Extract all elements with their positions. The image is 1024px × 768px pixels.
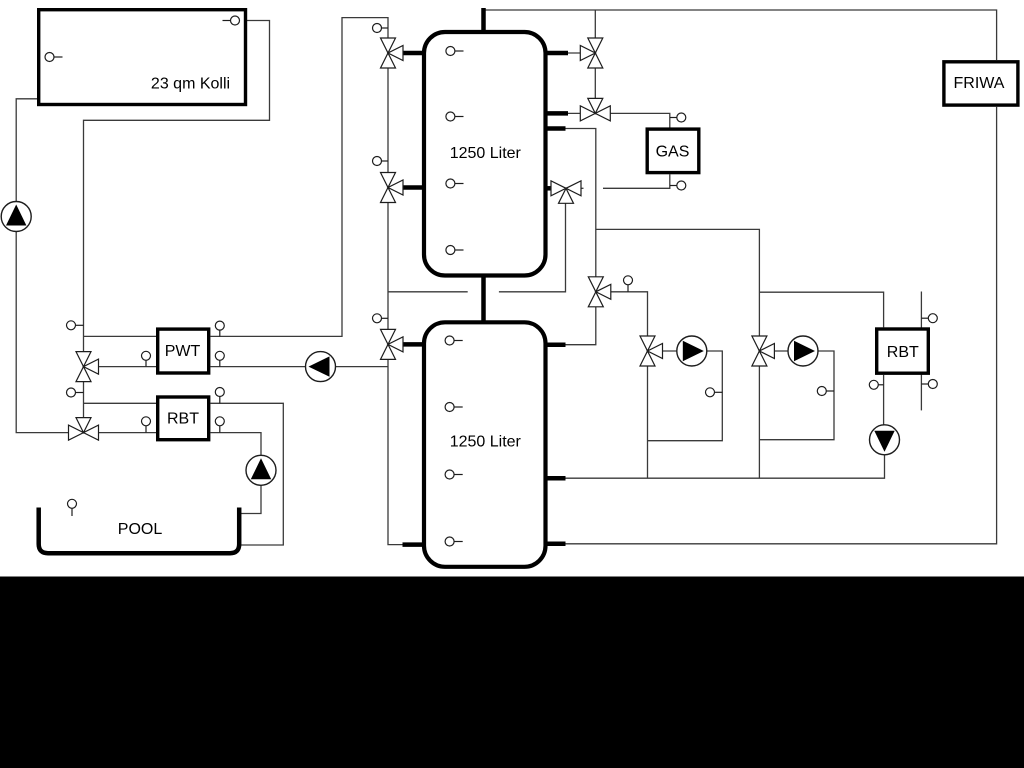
svg-text:GAS: GAS — [656, 144, 690, 161]
svg-text:FRIWA: FRIWA — [954, 75, 1005, 92]
svg-text:RBT: RBT — [887, 344, 919, 361]
svg-text:POOL: POOL — [118, 521, 163, 538]
svg-text:23 qm Kolli: 23 qm Kolli — [151, 75, 230, 92]
svg-text:1250 Liter: 1250 Liter — [450, 434, 522, 451]
svg-text:RBT: RBT — [167, 411, 199, 428]
svg-text:PWT: PWT — [165, 343, 201, 360]
svg-text:1250 Liter: 1250 Liter — [450, 145, 522, 162]
